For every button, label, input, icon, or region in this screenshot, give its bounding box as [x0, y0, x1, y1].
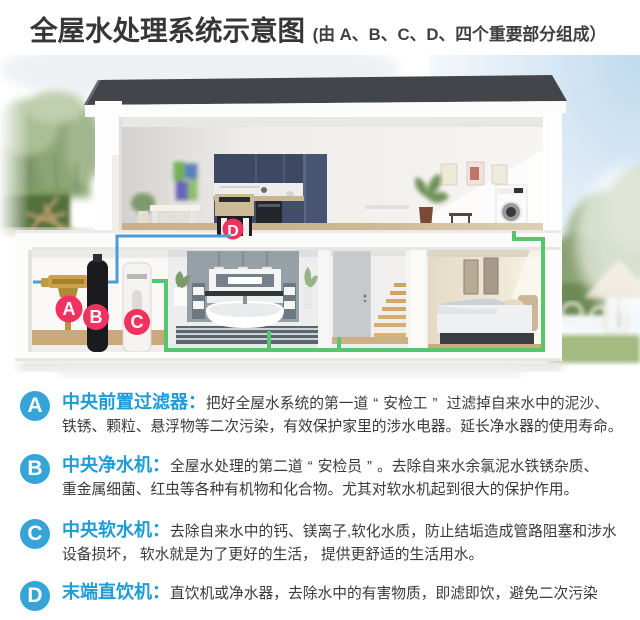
svg-text:B: B: [90, 307, 103, 327]
svg-text:A: A: [63, 299, 76, 319]
svg-text:C: C: [131, 312, 144, 332]
